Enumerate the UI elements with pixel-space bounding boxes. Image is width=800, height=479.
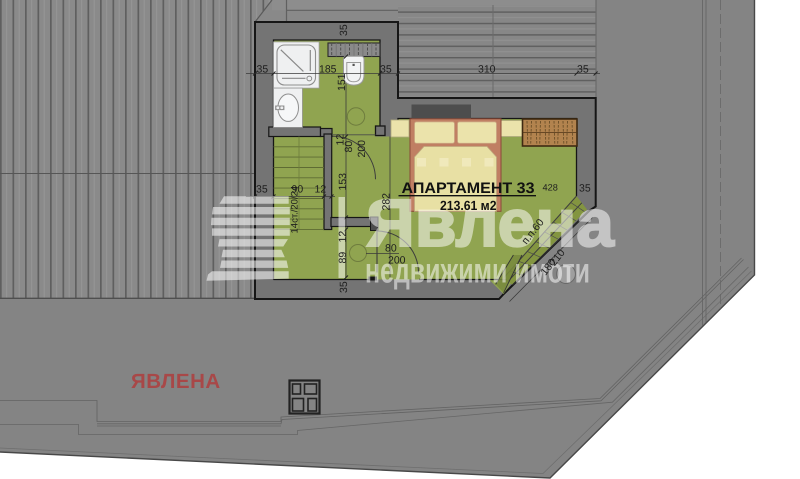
svg-text:200: 200 bbox=[356, 140, 368, 158]
svg-text:35: 35 bbox=[577, 64, 589, 76]
svg-text:35: 35 bbox=[256, 184, 268, 196]
svg-text:80: 80 bbox=[385, 243, 397, 255]
svg-text:35: 35 bbox=[338, 24, 350, 36]
svg-text:35: 35 bbox=[579, 183, 591, 195]
svg-text:282: 282 bbox=[381, 193, 393, 211]
svg-text:35: 35 bbox=[380, 64, 392, 76]
svg-text:14ст./20/24: 14ст./20/24 bbox=[289, 186, 300, 234]
svg-text:213.61 м2: 213.61 м2 bbox=[440, 198, 497, 213]
svg-text:12: 12 bbox=[337, 231, 349, 243]
svg-text:12: 12 bbox=[315, 184, 327, 196]
svg-text:200: 200 bbox=[388, 255, 406, 267]
svg-text:151: 151 bbox=[336, 73, 348, 91]
svg-text:153: 153 bbox=[337, 173, 349, 191]
svg-text:АПАРТАМЕНТ 33: АПАРТАМЕНТ 33 bbox=[402, 180, 535, 197]
svg-text:185: 185 bbox=[319, 64, 337, 76]
svg-text:35: 35 bbox=[338, 281, 350, 293]
svg-text:310: 310 bbox=[478, 64, 496, 76]
svg-text:89: 89 bbox=[337, 252, 349, 264]
svg-text:80: 80 bbox=[343, 141, 355, 153]
svg-text:35: 35 bbox=[257, 64, 269, 76]
svg-text:ЯВЛЕНА: ЯВЛЕНА bbox=[131, 370, 221, 393]
svg-text:428: 428 bbox=[543, 182, 558, 192]
